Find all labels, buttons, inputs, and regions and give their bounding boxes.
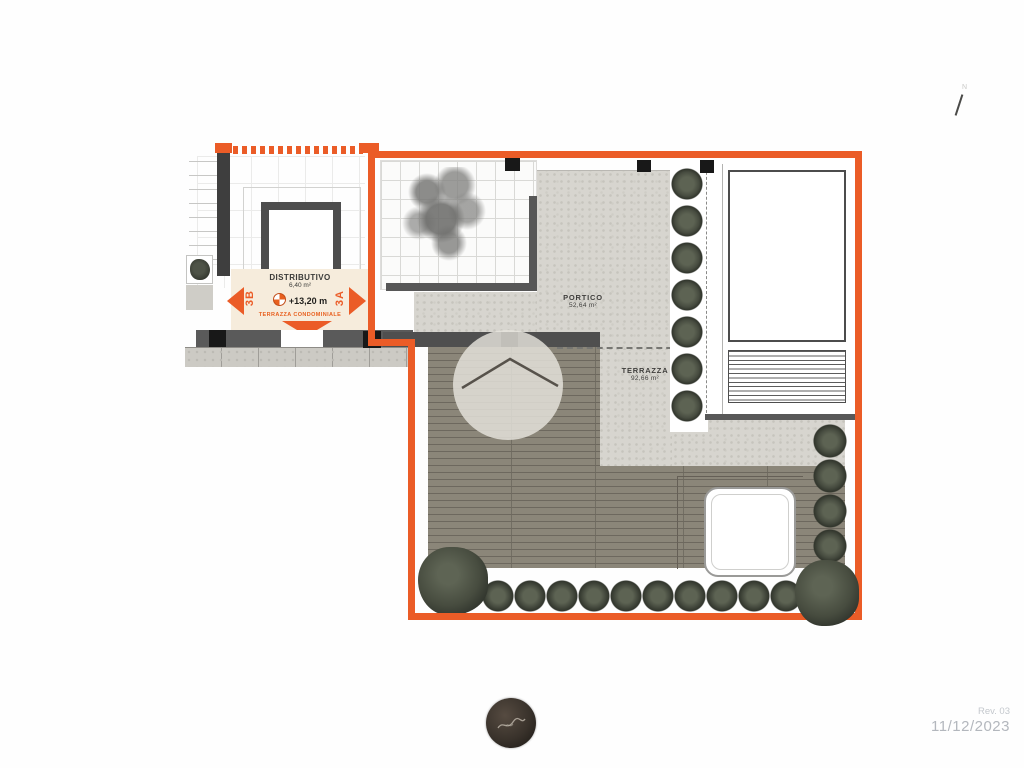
skylight-circle	[453, 330, 563, 440]
boundary-bottom	[408, 613, 862, 620]
boundary-right	[855, 151, 862, 620]
unit-label-3b: 3B	[244, 290, 256, 306]
unit-arrow-right-icon	[349, 287, 366, 315]
boundary-left-lower	[408, 341, 415, 620]
planter-box	[186, 255, 213, 284]
terrazza-title: TERRAZZA	[610, 366, 680, 375]
terrazza-area: 92,66 m²	[610, 375, 680, 383]
boundary-left-upper	[368, 151, 375, 344]
corridor-paving	[185, 347, 412, 367]
unit-label-3a: 3A	[334, 290, 346, 306]
architect-logo-icon	[486, 698, 536, 748]
plan-canvas: DISTRIBUTIVO 6,40 m² +13,20 m TERRAZZA C…	[0, 0, 1024, 768]
jacuzzi	[704, 487, 796, 577]
boundary-top	[372, 151, 862, 158]
revision-date: 11/12/2023	[890, 718, 1010, 735]
neighbour-edge-line	[722, 164, 723, 414]
boundary-hatch-band	[233, 146, 363, 154]
portico-label: PORTICO 52,64 m²	[548, 293, 618, 311]
pergola-wall-right	[529, 196, 537, 291]
hedge-row-bottom	[482, 580, 804, 613]
portico-area: 52,64 m²	[548, 302, 618, 310]
corner-bush-icon	[795, 560, 859, 626]
column-icon	[209, 330, 226, 347]
revision-label: Rev. 03	[910, 706, 1010, 717]
pergola-tree-icon	[397, 167, 499, 263]
unit-arrow-left-icon	[227, 287, 244, 315]
stair-wall	[217, 150, 230, 276]
column-icon	[700, 160, 714, 173]
neighbour-wall	[705, 414, 855, 420]
level-marker-icon	[273, 293, 286, 306]
landing-patch	[186, 285, 213, 310]
terrazza-label: TERRAZZA 92,66 m²	[610, 366, 680, 384]
stair-treads	[189, 161, 217, 267]
north-letter: N	[962, 84, 967, 91]
portico-title: PORTICO	[548, 293, 618, 302]
corridor-door-gap	[281, 330, 323, 347]
boundary-cap-left	[215, 143, 232, 153]
column-icon	[637, 160, 651, 172]
pergola-wall-bottom	[386, 283, 537, 291]
column-icon	[505, 158, 520, 171]
small-tree-icon	[190, 259, 210, 280]
north-arrow-icon	[955, 94, 964, 116]
hedge-column	[669, 166, 706, 426]
level-value: +13,20 m	[289, 296, 327, 306]
neighbour-pool	[728, 170, 846, 342]
portico-paving-2	[414, 292, 537, 333]
property-dashed-line	[706, 162, 707, 418]
hedge-column-right	[811, 424, 849, 564]
distributivo-title: DISTRIBUTIVO	[231, 273, 369, 282]
neighbour-grate	[728, 350, 846, 403]
portico-paving	[537, 170, 672, 351]
boundary-jog	[368, 339, 415, 346]
corner-bush-icon	[418, 547, 488, 615]
